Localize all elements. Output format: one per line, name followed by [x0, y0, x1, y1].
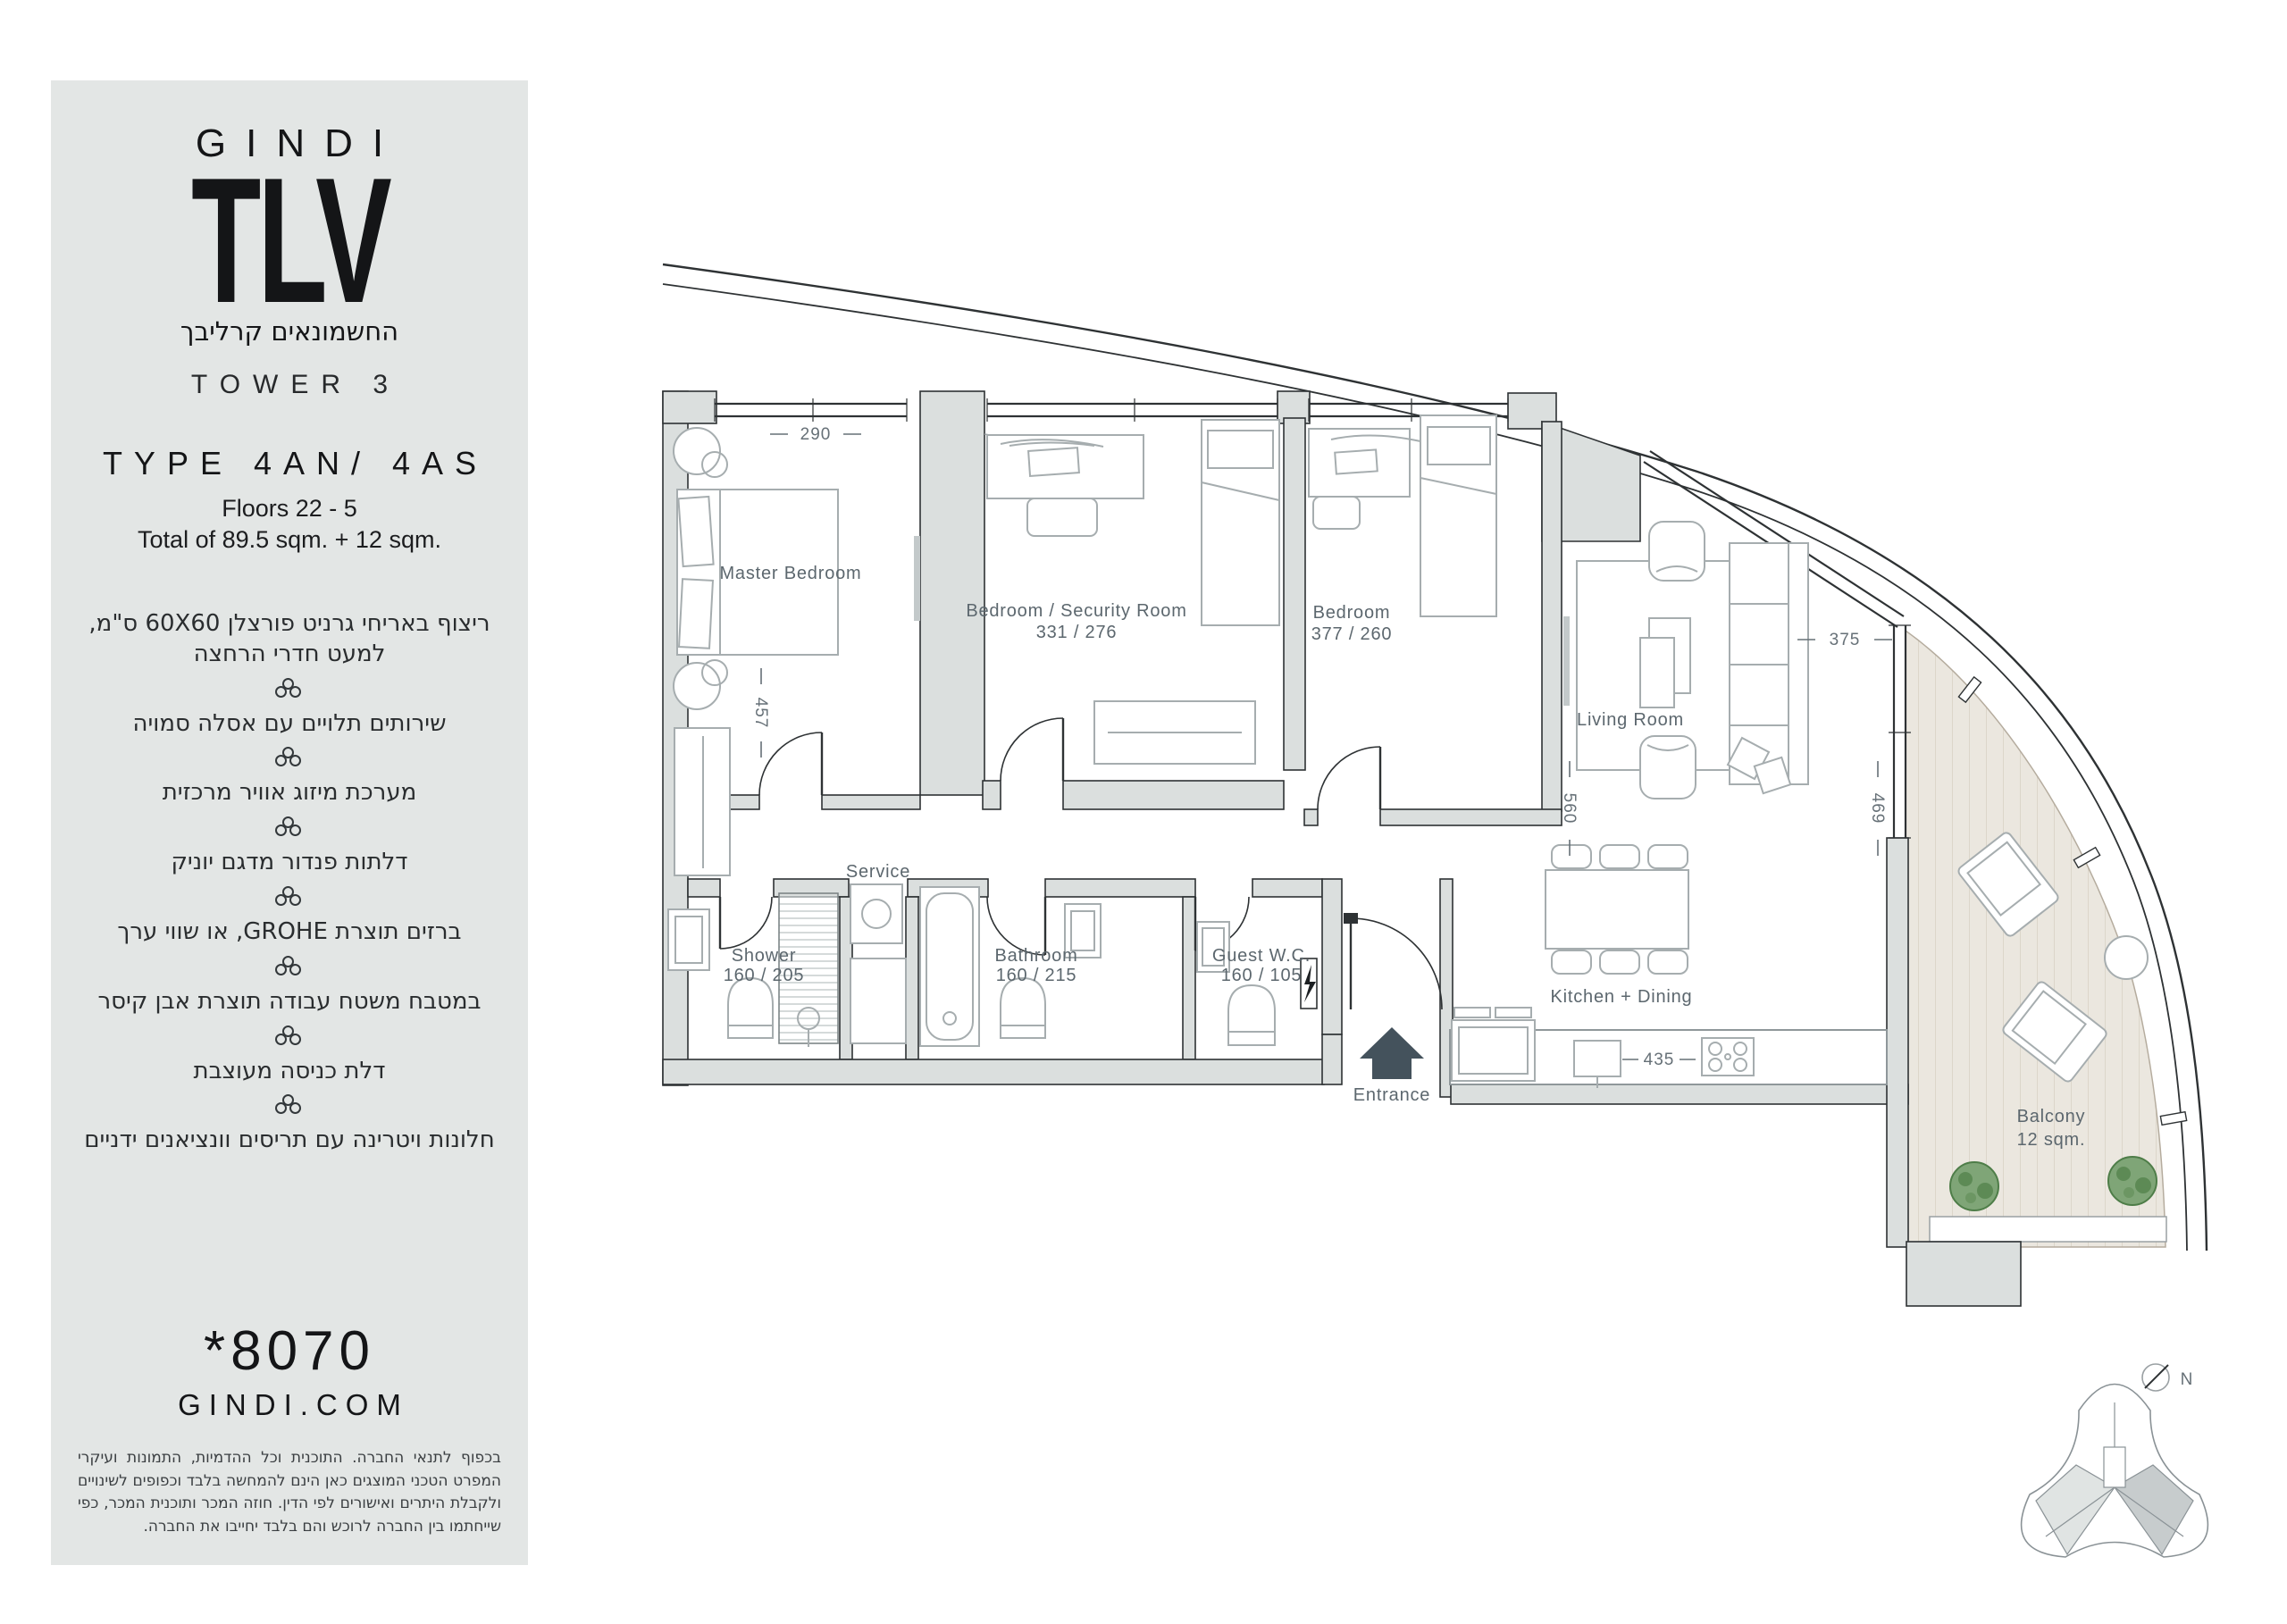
clover-icon [274, 956, 305, 979]
clover-icon [274, 886, 305, 909]
tower-label: TOWER 3 [179, 370, 400, 400]
feature-item: חלונות ויטרינה עם תריסים וונציאנים ידניי… [80, 1126, 499, 1156]
floors-label: Floors 22 - 5 [222, 495, 357, 523]
phone-number: *8070 [170, 1319, 409, 1383]
label-balcony-area: 12 sqm. [2017, 1130, 2086, 1150]
dim-375: 375 [1830, 631, 1861, 649]
website-link: GINDI.COM [170, 1388, 409, 1422]
dim-469: 469 [1868, 793, 1887, 825]
toilet [728, 978, 773, 1038]
round-chair [674, 663, 720, 709]
desk-chair [1027, 498, 1097, 536]
label-bedroom-dims: 377 / 260 [1311, 624, 1393, 644]
clover-icon [274, 1025, 305, 1049]
contact-block: *8070 GINDI.COM [170, 1319, 409, 1422]
label-bathroom-dims: 160 / 215 [996, 966, 1077, 985]
toilet [1001, 978, 1045, 1038]
label-security-bedroom-dims: 331 / 276 [1036, 623, 1118, 642]
clover-icon [274, 1094, 305, 1118]
linen-closet [850, 958, 906, 1043]
coffee-table [1640, 638, 1674, 707]
info-panel: GINDI TLV החשמונאים קרליבך TOWER 3 TYPE … [51, 80, 528, 1565]
label-kitchen-dining: Kitchen + Dining [1550, 987, 1692, 1007]
sink [668, 909, 709, 970]
brand-logo: GINDI TLV החשמונאים קרליבך [136, 121, 444, 347]
label-security-bedroom: Bedroom / Security Room [966, 601, 1186, 621]
door-hinge [1344, 913, 1358, 924]
brand-tlv: TLV [191, 168, 389, 314]
label-bathroom: Bathroom [994, 946, 1077, 966]
round-table [2105, 936, 2148, 979]
label-balcony: Balcony [2017, 1107, 2086, 1126]
feature-item: ברזים תוצרת GROHE, או שווי ערך [80, 917, 499, 948]
desk-chair [1313, 497, 1360, 529]
dim-290: 290 [800, 425, 832, 444]
feature-item: במטבח משטח עבודה תוצרת אבן קיסר [80, 987, 499, 1017]
label-service: Service [846, 862, 910, 882]
unit-type-title: TYPE 4AN/ 4AS [91, 445, 488, 482]
feature-item: דלתות פנדור מדגם יוניק [80, 848, 499, 878]
clover-icon [274, 816, 305, 840]
tv [1563, 616, 1570, 706]
label-guest-wc: Guest W.C. [1212, 946, 1311, 966]
plant [2108, 1157, 2157, 1205]
stove [1702, 1038, 1754, 1076]
bathtub [920, 887, 979, 1046]
label-master-bedroom: Master Bedroom [719, 564, 861, 583]
dim-435: 435 [1644, 1051, 1675, 1069]
clover-icon [274, 747, 305, 770]
legal-disclaimer: בכפוף לתנאי החברה. התוכנית וכל ההדמיות, … [78, 1447, 501, 1538]
dim-457: 457 [751, 698, 770, 729]
feature-list: ריצוף באריחי גרניט פורצלן 60X60 ס"מ, למע… [80, 609, 499, 1156]
balcony-planter [1930, 1217, 2166, 1242]
kitchen-cabinet [1452, 1020, 1535, 1081]
dim-560: 560 [1560, 793, 1579, 825]
compass-north-label: N [2181, 1370, 2194, 1389]
washing-machine [850, 884, 902, 943]
total-area-label: Total of 89.5 sqm. + 12 sqm. [138, 526, 441, 554]
label-living-room: Living Room [1577, 710, 1684, 730]
laptop [1028, 448, 1079, 476]
dining-table [1546, 870, 1688, 949]
kitchen-sink [1574, 1041, 1621, 1076]
tv [914, 536, 920, 621]
toilet [1228, 985, 1275, 1045]
label-entrance: Entrance [1353, 1085, 1430, 1105]
building-keyplan [2022, 1385, 2208, 1558]
label-shower-dims: 160 / 205 [724, 966, 805, 985]
laptop [1335, 449, 1378, 473]
north-compass-icon: N [2142, 1364, 2193, 1391]
feature-item: שירותים תלויים עם אסלה סמויה [80, 709, 499, 740]
round-chair [674, 428, 720, 474]
entrance-arrow-icon [1360, 1027, 1424, 1079]
label-shower: Shower [732, 946, 797, 966]
feature-item: ריצוף באריחי גרניט פורצלן 60X60 ס"מ, למע… [80, 609, 499, 670]
label-guest-wc-dims: 160 / 105 [1221, 966, 1303, 985]
clover-icon [274, 678, 305, 701]
feature-item: מערכת מיזוג אוויר מרכזית [80, 778, 499, 808]
label-bedroom: Bedroom [1313, 603, 1391, 623]
feature-item: דלת כניסה מעוצבת [80, 1057, 499, 1087]
plant [1950, 1162, 1998, 1210]
